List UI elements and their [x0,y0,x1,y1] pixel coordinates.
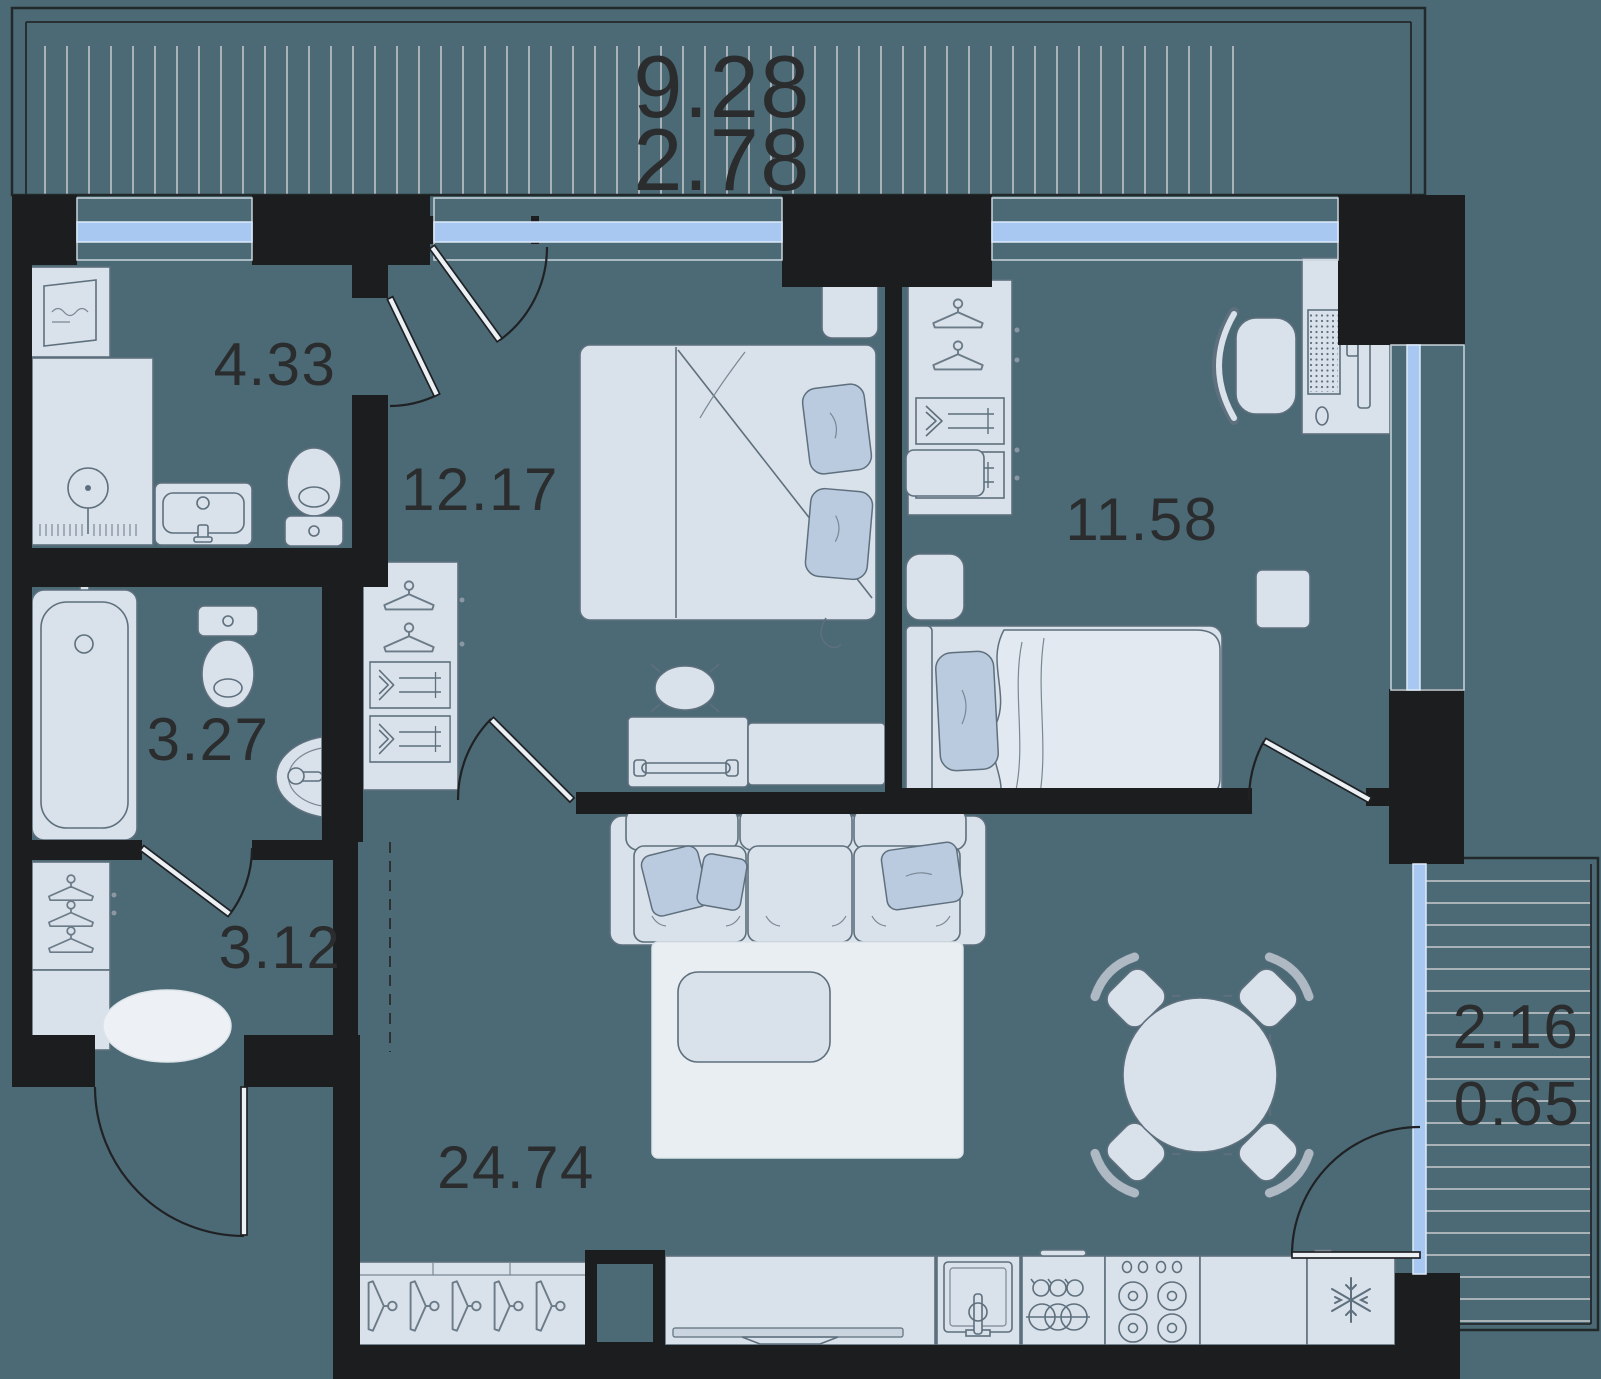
window [434,222,782,242]
dining-table [1123,998,1277,1152]
bathroom-sink [155,483,252,545]
top-balcony-secondary-label: 2.78 [633,110,810,209]
dishwasher-unit [1022,1250,1105,1345]
sofa-pillow [696,853,748,912]
window [1407,345,1420,690]
entry-rug [103,990,231,1062]
room-label-bedroom-second: 11.58 [1065,486,1218,553]
coffee-table [678,972,830,1062]
bedside-unit [906,554,964,620]
sofa-pillow [880,841,964,911]
nightstand [1256,570,1310,628]
fridge [1307,1250,1395,1345]
stool [655,666,715,710]
washing-machine [30,267,110,357]
bathtub [32,576,137,840]
room-label-living-kitchen: 24.74 [437,1134,595,1201]
room-label-bedroom-master: 12.17 [401,456,559,523]
tv-console [665,1256,935,1345]
room-label-hallway: 3.12 [219,914,342,981]
room-label-bathroom-tub: 3.27 [147,706,270,773]
glass-wall [1413,864,1426,1274]
toilet [285,448,343,546]
single-bed [906,626,1222,802]
shelf [906,450,984,496]
toilet [198,606,258,708]
tv [673,1328,903,1337]
shower-cabin [32,358,153,545]
floor-plan-page: 9.28 2.78 4.33 12.17 11.58 3.27 3.12 24.… [0,0,1601,1379]
master-wardrobe [363,562,465,790]
sofa [610,808,986,945]
double-bed [580,345,876,648]
kitchen-sink-unit [937,1256,1020,1345]
floor-plan: 9.28 2.78 4.33 12.17 11.58 3.27 3.12 24.… [0,0,1601,1379]
window [992,222,1338,242]
stove [1105,1256,1200,1345]
counter [1200,1256,1307,1345]
room-label-bathroom-shower: 4.33 [214,331,337,398]
window [77,222,252,242]
keyboard [1310,312,1338,392]
right-balcony-secondary-label: 0.65 [1454,1070,1581,1139]
bottom-wardrobe [357,1262,586,1345]
right-balcony-area-label: 2.16 [1453,993,1580,1062]
